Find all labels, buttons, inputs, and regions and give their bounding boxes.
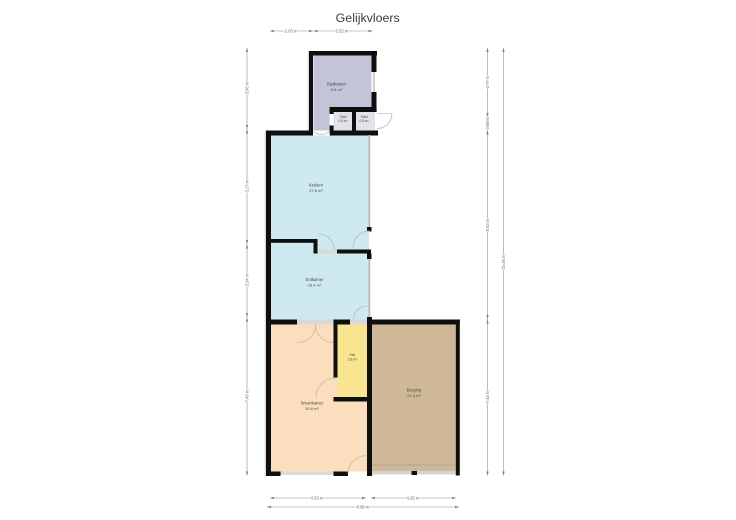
svg-text:0.8 m²: 0.8 m²	[359, 119, 368, 123]
svg-text:Keuken: Keuken	[309, 183, 324, 188]
svg-text:Eetkamer: Eetkamer	[306, 277, 325, 282]
svg-text:Woonkamer: Woonkamer	[301, 401, 324, 406]
svg-text:7.43 m: 7.43 m	[244, 389, 249, 402]
svg-text:Berging: Berging	[407, 388, 422, 393]
svg-text:3.34 m: 3.34 m	[244, 273, 249, 286]
svg-text:7.43 m: 7.43 m	[485, 390, 490, 403]
svg-text:0.8 m²: 0.8 m²	[338, 119, 347, 123]
svg-text:2.77 m: 2.77 m	[485, 75, 490, 88]
svg-text:21.4 m²: 21.4 m²	[407, 393, 421, 398]
svg-text:0.98 m: 0.98 m	[485, 116, 490, 129]
svg-text:3.66 m: 3.66 m	[244, 81, 249, 94]
svg-text:Badkamer: Badkamer	[327, 82, 347, 87]
svg-text:2.52 m: 2.52 m	[336, 28, 349, 33]
svg-text:8.88 m: 8.88 m	[357, 504, 370, 509]
svg-text:9.6 m²: 9.6 m²	[331, 87, 343, 92]
svg-text:5.27 m: 5.27 m	[244, 179, 249, 192]
svg-text:2.03 m: 2.03 m	[285, 28, 298, 33]
svg-text:4.25 m: 4.25 m	[407, 495, 420, 500]
svg-text:8.53 m: 8.53 m	[485, 218, 490, 231]
svg-text:Hal: Hal	[350, 353, 355, 357]
svg-text:18.4 m²: 18.4 m²	[308, 283, 322, 288]
svg-text:30.6 m²: 30.6 m²	[305, 406, 319, 411]
svg-text:21.36 m: 21.36 m	[501, 254, 506, 270]
svg-text:2.8 m²: 2.8 m²	[348, 358, 358, 362]
svg-text:27.8 m²: 27.8 m²	[309, 188, 323, 193]
svg-text:4.53 m: 4.53 m	[311, 495, 324, 500]
svg-text:Gelijkvloers: Gelijkvloers	[336, 11, 400, 25]
